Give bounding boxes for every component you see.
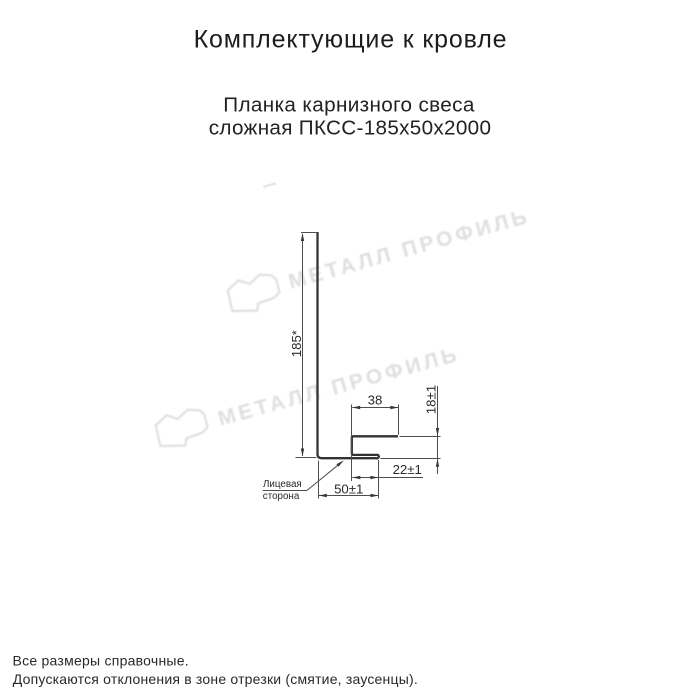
svg-text:185*: 185* [289,330,304,357]
svg-text:МЕТАЛЛ ПРОФИЛЬ: МЕТАЛЛ ПРОФИЛЬ [286,205,532,294]
svg-text:Планка карнизного свеса: Планка карнизного свеса [223,93,475,116]
svg-text:22±1: 22±1 [393,462,422,477]
svg-text:Лицевая: Лицевая [263,479,302,490]
svg-text:38: 38 [368,393,383,408]
svg-text:сложная ПКСС-185х50х2000: сложная ПКСС-185х50х2000 [209,116,492,139]
svg-text:Комплектующие к кровле: Комплектующие к кровле [194,26,508,54]
svg-text:50±1: 50±1 [334,482,363,497]
svg-text:18±1: 18±1 [423,385,438,414]
svg-text:Допускаются отклонения в зоне: Допускаются отклонения в зоне отрезки (с… [13,671,418,687]
svg-text:сторона: сторона [263,491,300,502]
svg-text:Все размеры справочные.: Все размеры справочные. [13,652,189,668]
